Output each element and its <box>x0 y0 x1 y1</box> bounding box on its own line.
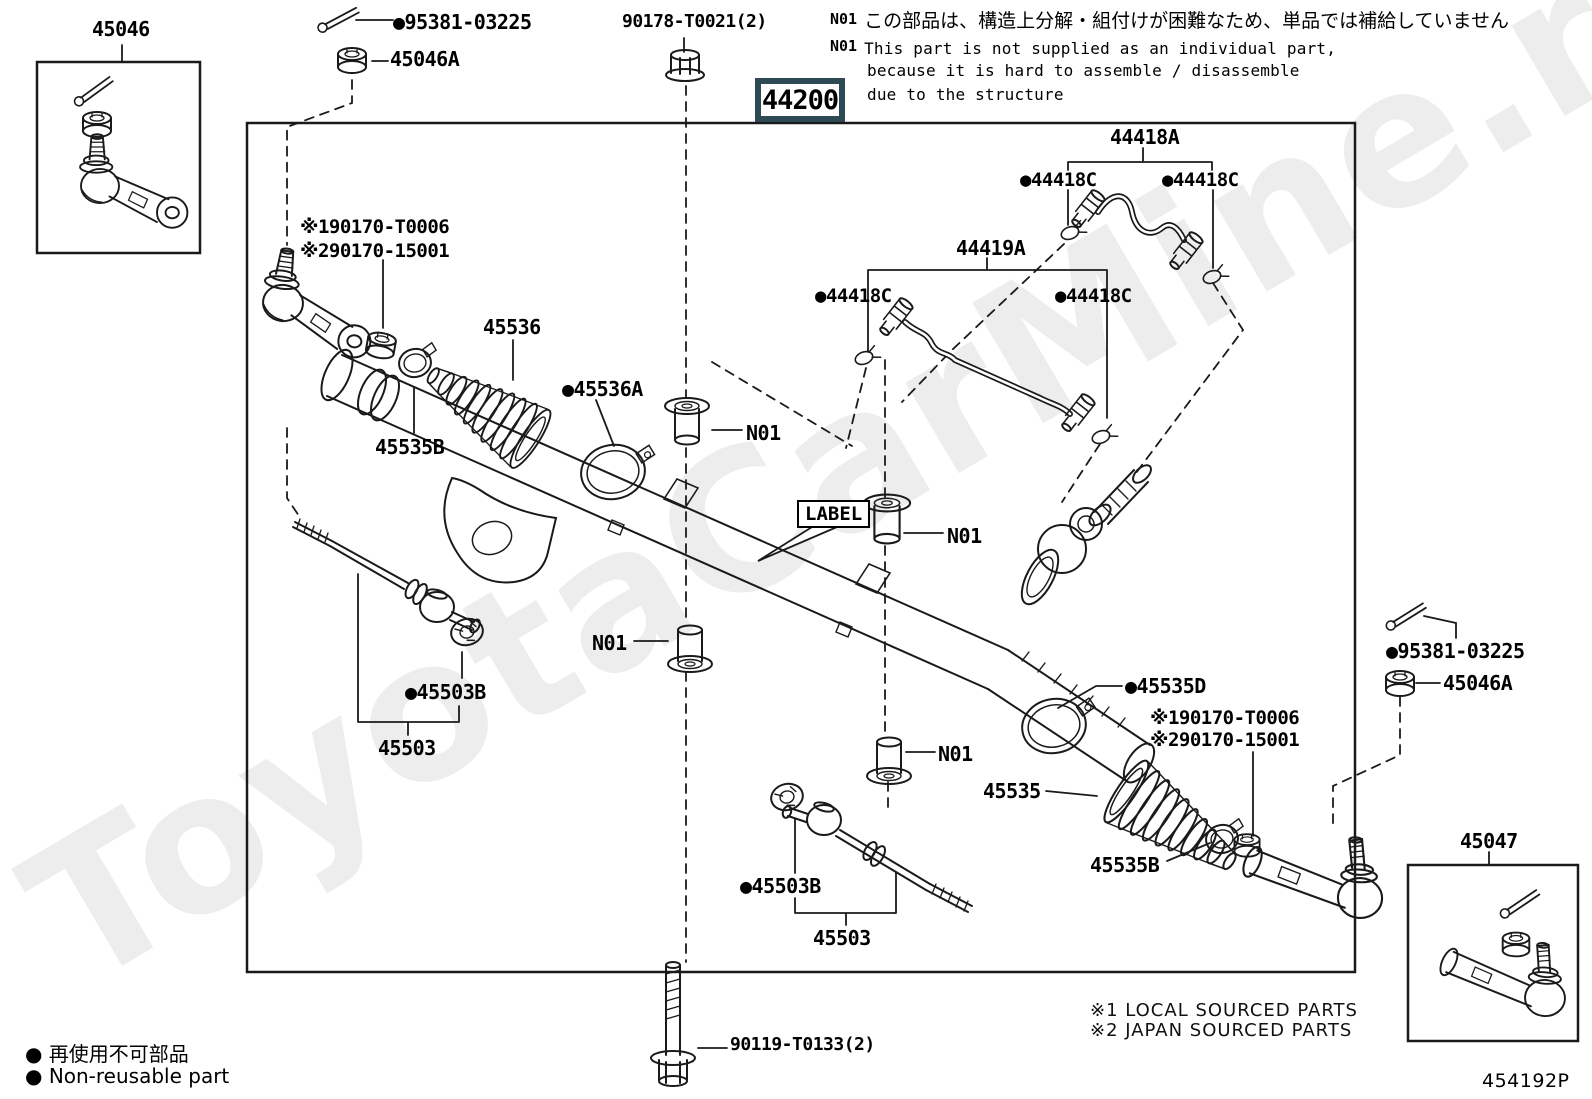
cotter-pin-right <box>1383 603 1429 631</box>
callout-290170-left: ※290170-15001 <box>300 240 449 262</box>
tie-rod-end-main-left <box>256 246 382 359</box>
parts-diagram-page: ToyotaCarMine.ru <box>0 0 1592 1099</box>
cotter-pin-top <box>316 8 361 33</box>
callout-45503-lower: 45503 <box>813 926 871 950</box>
note-en-line2: because it is hard to assemble / disasse… <box>867 61 1300 80</box>
label-callout-box: LABEL <box>797 500 870 528</box>
callout-45535: 45535 <box>983 779 1041 803</box>
part-44200-box: 44200 <box>755 78 845 122</box>
callout-95381-right: ●95381-03225 <box>1386 639 1525 663</box>
mount-grommet-n01-lower-mid <box>867 738 911 785</box>
diagram-line-art <box>0 0 1592 1099</box>
callout-45503B-upper: ●45503B <box>405 680 486 704</box>
callout-45046A-right: 45046A <box>1443 671 1512 695</box>
callout-45047: 45047 <box>1460 829 1518 853</box>
callout-45536A: ●45536A <box>562 377 643 401</box>
note-en-line3: due to the structure <box>867 85 1064 104</box>
castle-nut-right-45046A <box>1386 671 1414 696</box>
sourcing-note-2: ※2 JAPAN SOURCED PARTS <box>1090 1020 1352 1041</box>
callout-95381-top: ●95381-03225 <box>393 10 532 34</box>
castle-nut-top-45046A <box>338 48 366 73</box>
callout-90119: 90119-T0133(2) <box>730 1034 875 1055</box>
legend-jp: ● 再使用不可部品 <box>25 1038 189 1067</box>
callout-44418C-2: ●44418C <box>1162 169 1239 191</box>
mount-grommet-n01-mid <box>864 495 910 544</box>
inset-box-45046 <box>37 62 200 253</box>
callout-n01-lower-left: N01 <box>592 631 627 655</box>
label-callout-text: LABEL <box>805 503 862 525</box>
callout-n01-top: N01 <box>746 421 781 445</box>
sourcing-note-1: ※1 LOCAL SOURCED PARTS <box>1090 1000 1358 1021</box>
note-prefix-n01: N01 <box>830 10 857 28</box>
note-prefix-n01-2: N01 <box>830 37 857 55</box>
callout-45535B-left: 45535B <box>375 435 444 459</box>
callout-90178: 90178-T0021(2) <box>622 11 767 32</box>
mount-grommet-n01-lower-left <box>668 626 712 673</box>
pressure-tube-44419A <box>853 296 1118 445</box>
callout-45503B-lower: ●45503B <box>740 874 821 898</box>
flange-nut-90178 <box>666 50 704 81</box>
mount-bolt-90119 <box>651 962 695 1086</box>
callout-44200: 44200 <box>762 85 838 116</box>
drawing-number: 454192P <box>1482 1070 1570 1092</box>
callout-n01-lower-mid: N01 <box>938 742 973 766</box>
tie-rod-end-45047-inset <box>1434 890 1570 1018</box>
legend-bullet-2: ● <box>25 1064 42 1088</box>
callout-45535D: ●45535D <box>1125 674 1206 698</box>
callout-45046: 45046 <box>92 17 150 41</box>
callout-45503-upper: 45503 <box>378 736 436 760</box>
callout-190170-left: ※190170-T0006 <box>300 216 449 238</box>
callout-45535B-right: 45535B <box>1090 853 1159 877</box>
pressure-tube-44418A <box>1059 188 1229 285</box>
callout-190170-right: ※190170-T0006 <box>1150 707 1299 729</box>
callout-45536: 45536 <box>483 315 541 339</box>
callout-44419A: 44419A <box>956 236 1025 260</box>
callout-44418C-1: ●44418C <box>1020 169 1097 191</box>
boot-clamp-45535B-left <box>396 342 440 379</box>
callout-44418C-4: ●44418C <box>1055 285 1132 307</box>
mount-grommet-n01-top <box>665 398 709 445</box>
legend-en: ● Non-reusable part <box>25 1064 229 1088</box>
lock-nut-left-190170 <box>365 331 397 360</box>
legend-bullet-1: ● <box>25 1042 42 1066</box>
note-jp-line: N01この部品は、構造上分解・組付けが困難なため、単品では補給していません <box>830 6 1509 33</box>
boot-clamp-45535B-right <box>1203 818 1247 855</box>
callout-44418A: 44418A <box>1110 125 1179 149</box>
boot-clamp-45536A <box>577 438 661 504</box>
rack-end-45503-upper <box>293 519 486 649</box>
tie-rod-end-45046-inset <box>71 76 188 227</box>
callout-44418C-3: ●44418C <box>815 285 892 307</box>
note-en-line1: N01This part is not supplied as an indiv… <box>830 37 1336 58</box>
callout-45046A-top: 45046A <box>390 47 459 71</box>
boot-clamp-45535D <box>1017 690 1103 759</box>
callout-n01-mid: N01 <box>947 524 982 548</box>
callout-290170-right: ※290170-15001 <box>1150 729 1299 751</box>
